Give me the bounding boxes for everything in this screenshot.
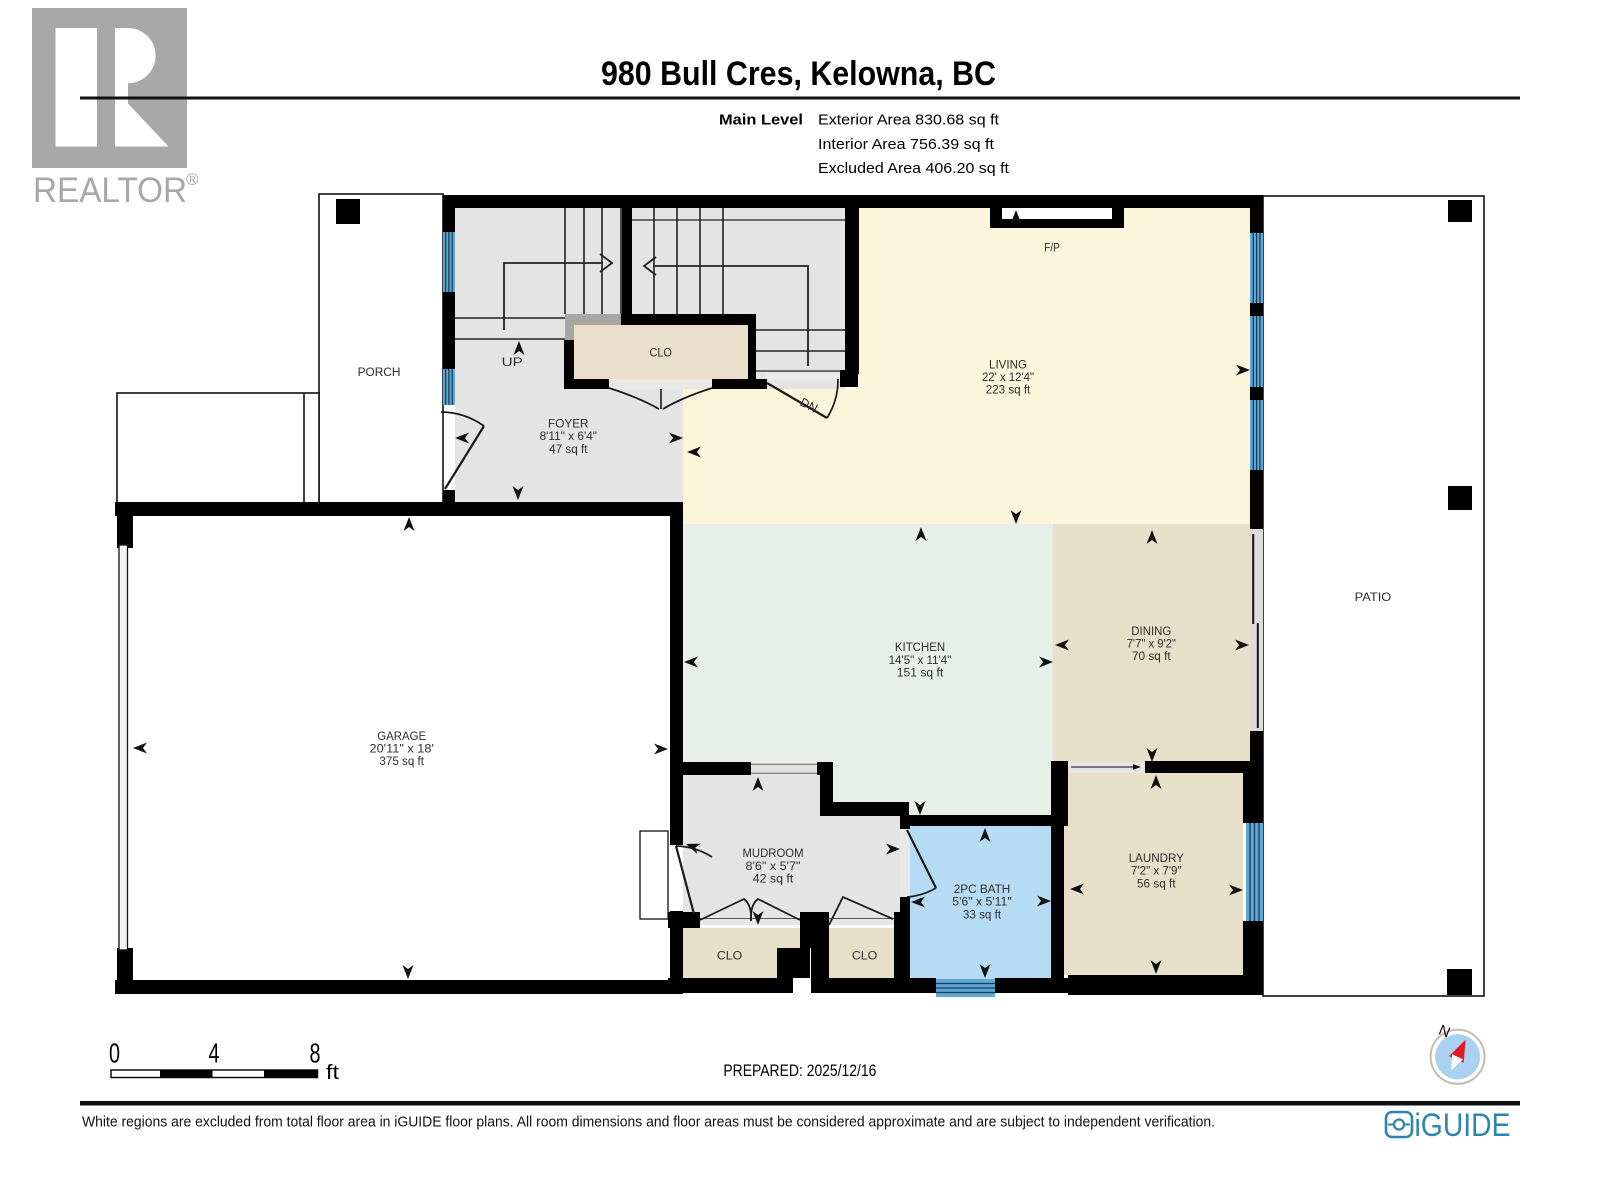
svg-text:8: 8	[310, 1038, 321, 1069]
svg-text:F/P: F/P	[1044, 241, 1060, 255]
svg-text:ft: ft	[326, 1062, 340, 1084]
svg-text:PATIO: PATIO	[1355, 590, 1392, 604]
svg-text:70 sq ft: 70 sq ft	[1132, 649, 1171, 663]
svg-text:CLO: CLO	[717, 948, 743, 962]
svg-text:980 Bull Cres, Kelowna, BC: 980 Bull Cres, Kelowna, BC	[601, 55, 996, 93]
svg-text:47 sq ft: 47 sq ft	[549, 442, 588, 456]
svg-text:0: 0	[109, 1038, 120, 1069]
svg-text:iGUIDE: iGUIDE	[1415, 1107, 1511, 1143]
svg-text:CLO: CLO	[852, 948, 878, 962]
svg-text:PREPARED: 2025/12/16: PREPARED: 2025/12/16	[723, 1062, 876, 1080]
svg-text:CLO: CLO	[649, 346, 672, 360]
svg-text:56 sq ft: 56 sq ft	[1137, 876, 1176, 890]
svg-text:Exterior Area 830.68 sq ft: Exterior Area 830.68 sq ft	[818, 112, 1000, 129]
svg-text:223 sq ft: 223 sq ft	[986, 383, 1031, 397]
svg-text:151 sq ft: 151 sq ft	[897, 666, 944, 680]
svg-text:REALTOR: REALTOR	[33, 171, 187, 210]
svg-text:33 sq ft: 33 sq ft	[963, 907, 1002, 921]
svg-text:Excluded Area 406.20 sq ft: Excluded Area 406.20 sq ft	[818, 160, 1010, 177]
svg-text:42 sq ft: 42 sq ft	[753, 872, 794, 886]
svg-text:UP: UP	[502, 355, 523, 369]
svg-text:375 sq ft: 375 sq ft	[379, 754, 424, 768]
svg-text:White regions are excluded fro: White regions are excluded from total fl…	[82, 1114, 1215, 1131]
svg-text:PORCH: PORCH	[358, 365, 401, 379]
svg-text:Interior Area 756.39 sq ft: Interior Area 756.39 sq ft	[818, 136, 995, 153]
svg-text:4: 4	[209, 1038, 220, 1069]
svg-text:®: ®	[186, 170, 199, 189]
svg-text:Main Level: Main Level	[719, 112, 803, 129]
